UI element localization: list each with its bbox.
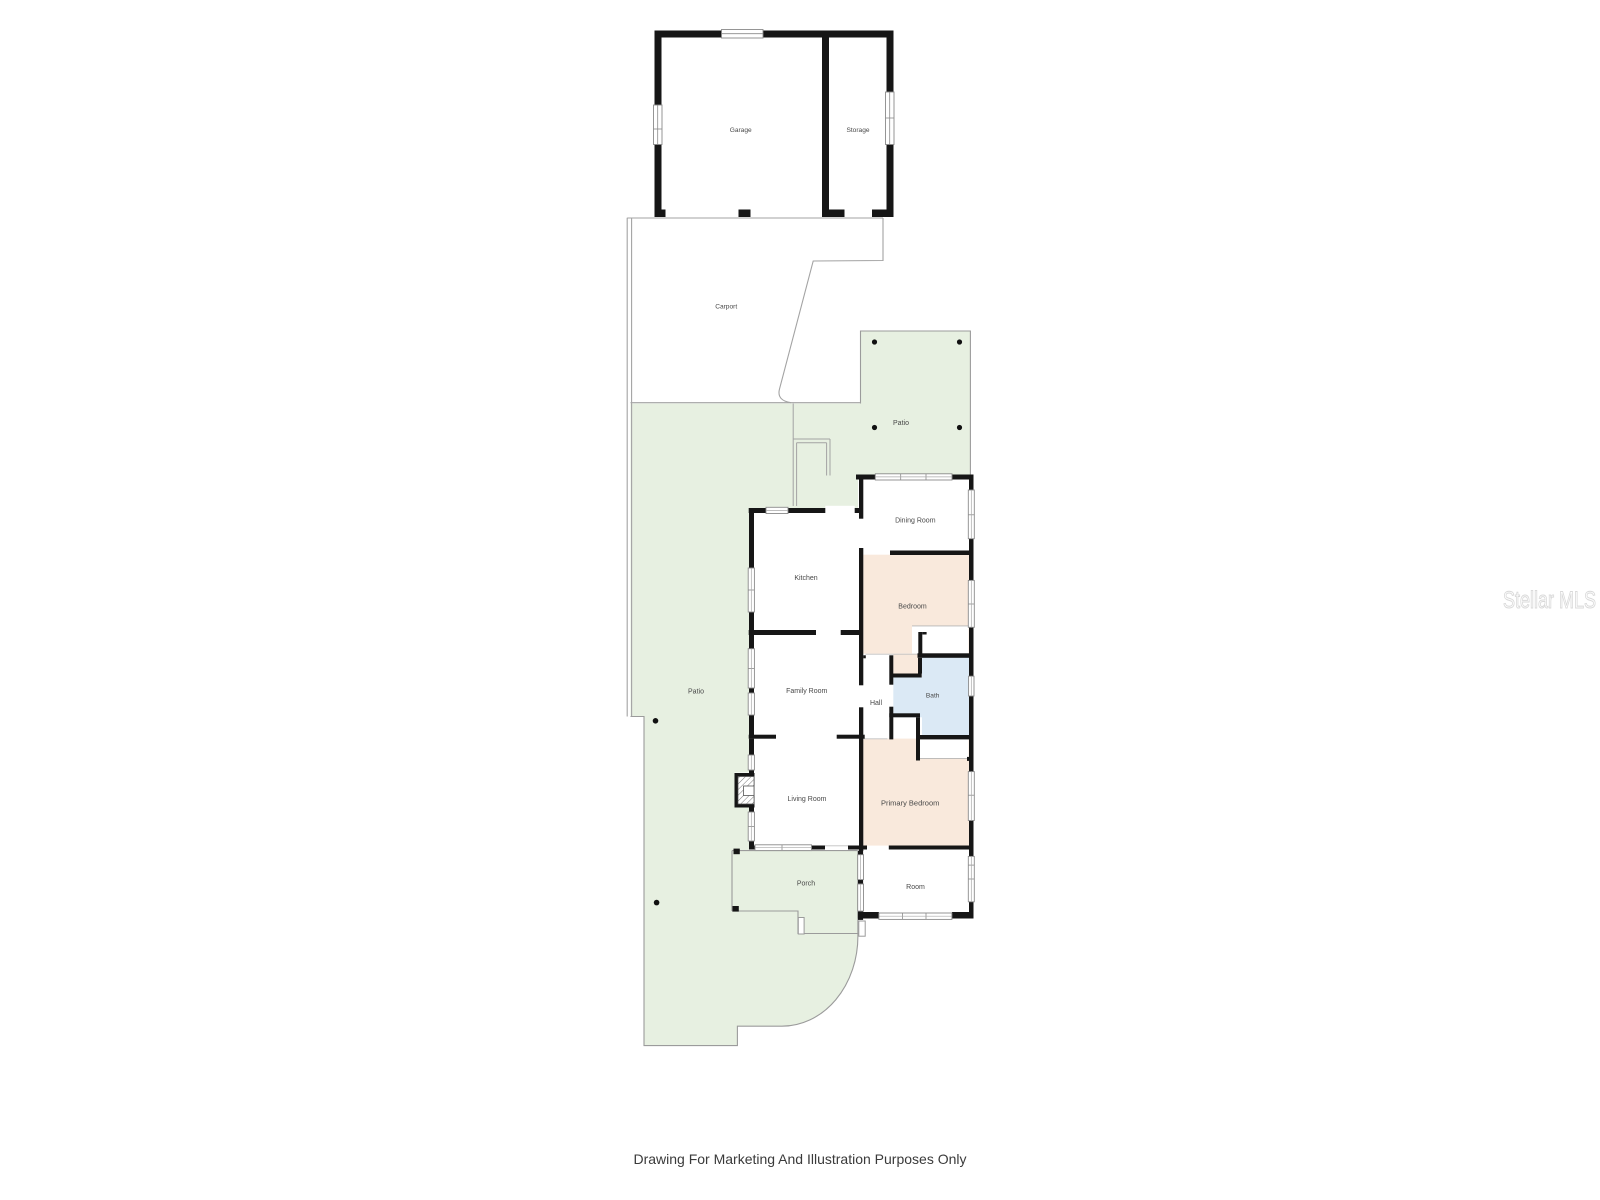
svg-text:Bedroom: Bedroom [898,604,927,611]
svg-text:Patio: Patio [688,689,704,696]
svg-text:Stellar MLS: Stellar MLS [1503,587,1596,614]
svg-text:Family Room: Family Room [786,688,827,695]
svg-text:Storage: Storage [846,127,869,134]
svg-text:Patio: Patio [893,420,909,427]
svg-text:Primary Bedroom: Primary Bedroom [881,798,939,807]
svg-text:Living Room: Living Room [788,796,827,803]
svg-text:Porch: Porch [797,881,815,888]
svg-text:Drawing For Marketing And Illu: Drawing For Marketing And Illustration P… [633,1151,966,1167]
svg-text:Hall: Hall [870,700,883,707]
svg-text:Kitchen: Kitchen [794,575,817,582]
svg-text:Room: Room [906,884,925,891]
svg-text:Carport: Carport [715,303,737,310]
svg-text:Bath: Bath [926,693,940,700]
svg-text:Dining Room: Dining Room [895,518,936,525]
svg-text:Garage: Garage [730,127,752,134]
